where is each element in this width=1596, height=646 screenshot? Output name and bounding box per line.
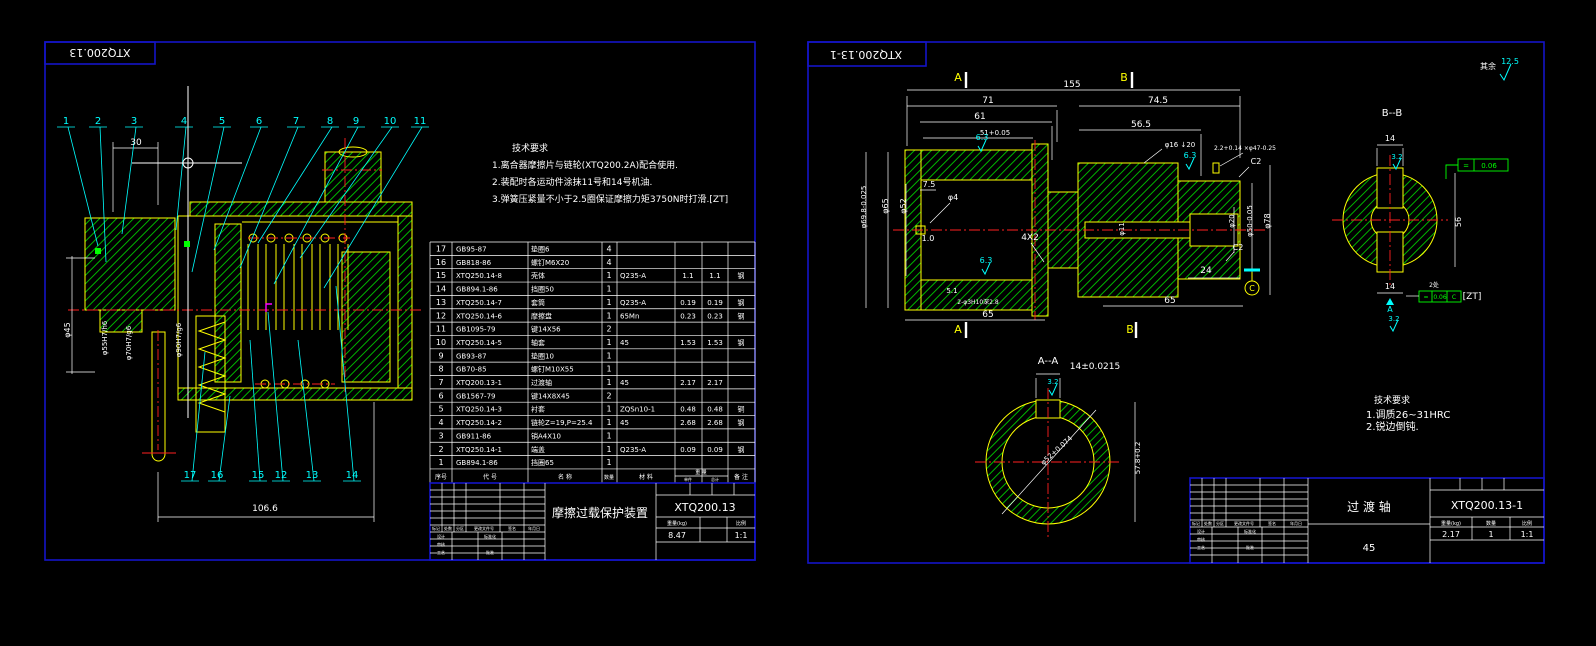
weight-label: 重量(kg) [667,520,687,527]
dim-label: 14 [1385,134,1395,143]
callout-17: 17 [184,470,197,481]
bom-cell-qty: 1 [606,418,611,427]
tb-label: 分区 [1216,520,1224,526]
bom-cell-unit-weight: 0.23 [680,312,696,320]
bom-cell-code: XTQ250.14-1 [456,446,502,454]
bom-cell-no: 17 [436,245,446,254]
bom-cell-name: 垫圈10 [531,351,554,360]
dim-label: 57.8+0.2 [1134,442,1142,475]
bom-cell-qty: 1 [606,311,611,320]
dim-label: 2.2+0.14 ×φ47-0.25 [1214,145,1276,152]
bom-cell-material: 45 [620,379,629,387]
bom-cell-qty: 1 [606,298,611,307]
dim-label: 24 [1200,266,1212,276]
bom-cell-unit-weight: 1.53 [680,339,696,347]
bom-cell-no: 3 [438,431,443,440]
callout-6: 6 [256,116,262,127]
selection-grip[interactable] [95,248,101,254]
dimension-labels: 30106.6φ45φ55H7/h6φ70H7/g6φ90H7/g6 [63,138,278,514]
bom-cell-no: 6 [438,391,443,400]
dim-label: 5.1 [946,287,957,295]
tb-label: 分区 [456,525,464,531]
tb-label: 标准化 [484,533,496,539]
dim-label: 71 [982,96,993,106]
bom-cell-no: 13 [436,298,446,307]
grid-line [298,340,314,481]
material-value: 45 [1363,543,1376,554]
dim-label: [ZT] [1463,292,1482,302]
tb-label: 处数 [1204,520,1212,526]
bom-header: 总计 [711,476,719,482]
bom-cell-qty: 2 [606,325,611,334]
bom-cell-note: 钢 [738,418,745,427]
callout-16: 16 [211,470,224,481]
bom-cell-total-weight: 0.09 [707,446,723,454]
bom-cell-qty: 4 [606,245,611,254]
tb-label: 标准化 [1244,528,1256,534]
callout-12: 12 [275,470,288,481]
bom-cell-note: 钢 [738,298,745,307]
bom-cell-name: 摩擦盘 [531,311,552,320]
callout-8: 8 [327,116,333,127]
bom-header: 单件 [684,476,692,482]
callout-9: 9 [353,116,359,127]
bom-cell-qty: 1 [606,445,611,454]
dim-label: 7.5 [923,180,936,189]
bom-cell-name: 挡圈50 [531,285,554,294]
cad-drawing: XTQ200.13 [0,0,1596,646]
bom-cell-name: 螺钉M6X20 [531,258,569,267]
bom-cell-no: 15 [436,271,446,280]
bom-cell-no: 1 [438,458,443,467]
dim-label: φ69.8-0.025 [860,186,868,229]
bom-cell-no: 16 [436,258,446,267]
technical-requirements: 技术要求1.调质26~31HRC2.锐边倒钝. [1366,394,1450,433]
dim-label: 其余 [1480,61,1496,71]
bom-cell-code: GB70-85 [456,366,487,374]
bom-cell-no: 7 [438,378,443,387]
bom-cell-material: Q235-A [620,299,646,307]
tech-req-line: 1.调质26~31HRC [1366,409,1450,421]
grid-line [192,352,205,481]
bom-cell-material: 45 [620,419,629,427]
dim-label: 155 [1063,80,1080,90]
bom-cell-no: 2 [438,445,443,454]
bom-cell-unit-weight: 0.48 [680,406,696,414]
ring-groove [1213,163,1219,173]
bom-cell-qty: 4 [606,258,611,267]
tb-label: 审核 [437,541,445,547]
bom-cell-code: GB894.1-86 [456,286,498,294]
bom-cell-code: GB911-86 [456,432,492,440]
section-label-B: B [1126,323,1134,336]
bom-cell-unit-weight: 0.19 [680,299,696,307]
dim-label: φ55H7/h6 [101,320,109,355]
bom-cell-qty: 1 [606,271,611,280]
bom-cell-qty: 2 [606,391,611,400]
dim-label: 0.06 [1481,162,1497,170]
grid-line [240,127,298,268]
dim-label: 65 [982,310,993,320]
dim-label: 3.2 [1388,315,1399,323]
tb-label: 更改文件号 [1234,520,1254,526]
bom-cell-qty: 1 [606,431,611,440]
callout-4: 4 [181,116,187,127]
title-block-text: 过 渡 轴XTQ200.13-1452.1711:1重量(kg)数量比例标记处数… [1192,499,1533,554]
bom-header: 代 号 [483,473,497,481]
bom-cell-note: 钢 [738,271,745,280]
callout-13: 13 [306,470,319,481]
left-drawing-sheet: XTQ200.13 [45,42,755,560]
dim-label: 0.06 [1433,294,1447,301]
tb-label: 年月日 [1290,520,1302,526]
bom-cell-name: 衬套 [531,405,545,414]
section-label-A: A [954,71,962,84]
bom-cell-code: XTQ250.14-8 [456,272,502,280]
bom-cell-code: XTQ250.14-7 [456,299,502,307]
section-label-B: B [1120,71,1128,84]
shaft-main-view [866,72,1270,338]
bom-cell-name: 键14X8X45 [531,391,570,400]
bom-cell-total-weight: 2.17 [707,379,723,387]
tech-req-line: 2.装配时各运动件涂抹11号和14号机油. [492,176,652,188]
callout-14: 14 [346,470,359,481]
product-name: 摩擦过载保护装置 [552,505,648,520]
tb-label: 批准 [486,549,494,555]
dim-label: φ45 [63,322,72,337]
tech-req-line: 1.离合器摩擦片与链轮(XTQ200.2A)配合使用. [492,159,678,171]
drawing-number: XTQ200.13-1 [1451,499,1523,512]
bom-cell-qty: 1 [606,365,611,374]
bom-cell-code: GB818-86 [456,259,492,267]
bom-header: 重 量 [695,469,707,476]
callout-3: 3 [131,116,137,127]
bom-header: 备 注 [734,473,748,481]
dim-label: 65 [1164,296,1175,306]
dim-label: 6.3 [976,133,989,142]
dim-label: C [1249,284,1255,293]
bom-cell-note: 钢 [738,311,745,320]
bom-cell-name: 键14X56 [531,325,561,334]
tb-label: 设计 [437,533,445,539]
quantity-value: 1 [1488,530,1493,539]
bom-cell-name: 轴套 [531,338,545,347]
right-drawing-sheet: XTQ200.13-1 [808,42,1544,563]
tb-label: 工艺 [437,550,445,555]
dim-label: 3.2 [1391,153,1402,161]
tb-label: 标记 [1192,520,1200,526]
bom-cell-note: 钢 [738,338,745,347]
bom-cell-qty: 1 [606,405,611,414]
dim-label: φ50-0.05 [1246,205,1254,237]
dim-label: 106.6 [252,504,278,514]
grid-line [68,127,98,246]
bom-cell-name: 链轮Z=19,P=25.4 [531,418,593,427]
bom-cell-name: 垫圈6 [531,245,550,254]
bom-cell-code: GB95-87 [456,246,487,254]
dim-label: C [1452,294,1456,301]
dim-label: 2处 [1429,281,1439,289]
tb-label: 工艺 [1197,545,1205,550]
bom-header: 名 称 [558,473,572,481]
part-name: 过 渡 轴 [1347,499,1391,514]
bom-cell-code: XTQ250.14-5 [456,339,502,347]
callout-5: 5 [219,116,225,127]
bom-cell-unit-weight: 1.1 [682,272,693,280]
dim-label: 30 [130,138,142,148]
bom-cell-qty: 1 [606,285,611,294]
bom-cell-total-weight: 0.23 [707,312,723,320]
dim-label: C2 [1251,157,1262,166]
bom-cell-no: 12 [436,311,446,320]
bom-header: 序号 [435,473,447,481]
dim-label: 61 [974,112,985,122]
dim-label: φ70H7/g6 [125,325,133,360]
section-label-A: A [954,323,962,336]
dim-label: = [1463,162,1469,170]
magenta-mark [266,304,272,312]
bom-cell-total-weight: 2.68 [707,419,723,427]
bom-cell-material: ZQSn10-1 [620,406,655,414]
bom-cell-total-weight: 1.1 [709,272,720,280]
bom-cell-code: GB1095-79 [456,326,495,334]
cad-model-space: XTQ200.13 [0,0,1596,646]
dim-label: φ90H7/g6 [175,322,183,357]
bom-cell-total-weight: 0.48 [707,406,723,414]
bom-cell-unit-weight: 2.68 [680,419,696,427]
grid-line [176,127,186,230]
dim-label: φ16 ↓20 [1165,141,1196,149]
dim-label: 3.2 [1047,378,1058,386]
bom-cell-name: 挡圈65 [531,458,554,467]
tb-label: 批准 [1246,544,1254,550]
dim-label: A [1387,305,1393,314]
dim-label: 6.3 [1184,151,1197,160]
tb-label: 年月日 [528,525,540,531]
bom-cell-no: 10 [436,338,446,347]
dim-label: 14 [1385,282,1395,291]
callout-7: 7 [293,116,299,127]
bom-cell-no: 14 [436,285,446,294]
drawing-number: XTQ200.13 [674,501,735,514]
dim-label: 56.5 [1131,120,1151,130]
callout-11: 11 [414,116,427,127]
tech-req-line: 2.锐边倒钝. [1366,420,1419,433]
bom-cell-code: XTQ250.14-2 [456,419,502,427]
bom-cell-qty: 1 [606,458,611,467]
tb-label: 签名 [508,525,516,531]
grid-line [250,340,260,481]
title-block [430,483,755,560]
bom-cell-code: GB1567-79 [456,392,495,400]
bom-cell-name: 过渡轴 [531,378,552,387]
dim-label: 56 [1454,217,1463,227]
bom-cell-code: XTQ250.14-6 [456,312,502,320]
bom-header: 数量 [604,474,614,481]
selection-grip[interactable] [184,241,190,247]
callout-15: 15 [252,470,265,481]
bom-cell-name: 端盖 [531,445,545,454]
dim-label: A--A [1038,356,1059,367]
bom-table: 17GB95-87垫圈6416GB818-86螺钉M6X20415XTQ250.… [430,242,755,483]
drawing-number-flipped: XTQ200.13-1 [830,48,902,61]
dim-label: 74.5 [1148,96,1168,106]
bom-cell-name: 壳体 [531,271,545,280]
dim-label: = [1423,294,1428,301]
tb-label: 标记 [432,525,440,531]
dim-label: φ65 [881,198,890,213]
scale-label: 比例 [736,520,746,527]
tech-req-title: 技术要求 [512,142,548,154]
dim-label: 4X2 [1021,233,1039,243]
dim-label: 1.0 [922,234,935,243]
tb-label: 设计 [1197,528,1205,534]
tb-label: 处数 [444,525,452,531]
tb-label: 审核 [1197,536,1205,542]
weight-value: 2.17 [1442,530,1460,539]
bom-cell-qty: 1 [606,378,611,387]
tech-req-title: 技术要求 [1374,394,1410,406]
bom-cell-material: 45 [620,339,629,347]
bolt [152,332,165,461]
callout-10: 10 [384,116,397,127]
bom-cell-code: XTQ250.14-3 [456,406,502,414]
bom-cell-no: 5 [438,405,443,414]
dim-label: 6.3 [980,256,993,265]
bom-cell-no: 11 [436,325,446,334]
bom-cell-total-weight: 1.53 [707,339,723,347]
bom-cell-unit-weight: 2.17 [680,379,696,387]
bom-cell-code: XTQ200.13-1 [456,379,502,387]
bom-cell-code: GB894.1-86 [456,459,498,467]
drawing-number-flipped: XTQ200.13 [69,46,130,59]
dim-label: 14±0.0215 [1070,362,1120,372]
bom-cell-total-weight: 0.19 [707,299,723,307]
spring-pack [248,234,348,388]
bom-cell-no: 4 [438,418,443,427]
tb-label: 更改文件号 [474,525,494,531]
dim-label: φ4 [948,193,958,202]
scale-label: 比例 [1522,520,1532,527]
bom-cell-note: 钢 [738,445,745,454]
dim-label: φ20 [1228,214,1236,228]
bom-cell-material: Q235-A [620,272,646,280]
quantity-label: 数量 [1486,520,1496,527]
bom-cell-unit-weight: 0.09 [680,446,696,454]
bom-cell-note: 铜 [738,405,745,414]
weight-label: 重量(kg) [1441,520,1461,527]
grid-line [258,127,332,243]
dim-label: 2-φ3H10深2.8 [957,298,999,306]
tb-label: 签名 [1268,520,1276,526]
dim-label: 12.5 [1501,57,1519,66]
scale-value: 1:1 [1521,530,1534,539]
callout-2: 2 [95,116,101,127]
bom-cell-name: 螺钉M10X55 [531,365,574,374]
assembly-section-view [66,138,422,522]
bom-cell-no: 9 [438,351,443,360]
datum-a-triangle [1386,298,1394,305]
dim-label: φ78 [1263,213,1272,228]
scale-value: 1:1 [735,531,748,540]
bom-cell-qty: 1 [606,338,611,347]
dim-label: C2 [1233,243,1244,252]
bom-cell-no: 8 [438,365,443,374]
bom-cell-qty: 1 [606,351,611,360]
dim-label: B--B [1382,108,1403,119]
weight-value: 8.47 [668,531,686,540]
callout-1: 1 [63,116,69,127]
tech-req-line: 3.弹簧压紧量不小于2.5圈保证摩擦力矩3750N时打滑.[ZT] [492,193,728,205]
bom-cell-name: 套筒 [531,298,545,307]
technical-requirements: 技术要求1.离合器摩擦片与链轮(XTQ200.2A)配合使用.2.装配时各运动件… [492,142,728,205]
bom-cell-code: GB93-87 [456,352,487,360]
dim-label: φ11 [1118,222,1126,236]
bom-cell-name: 销A4X10 [531,431,561,440]
dim-label: φ52 [899,198,908,213]
bom-cell-material: 65Mn [620,312,639,320]
bom-header: 材 料 [639,473,653,481]
bom-cell-material: Q235-A [620,446,646,454]
